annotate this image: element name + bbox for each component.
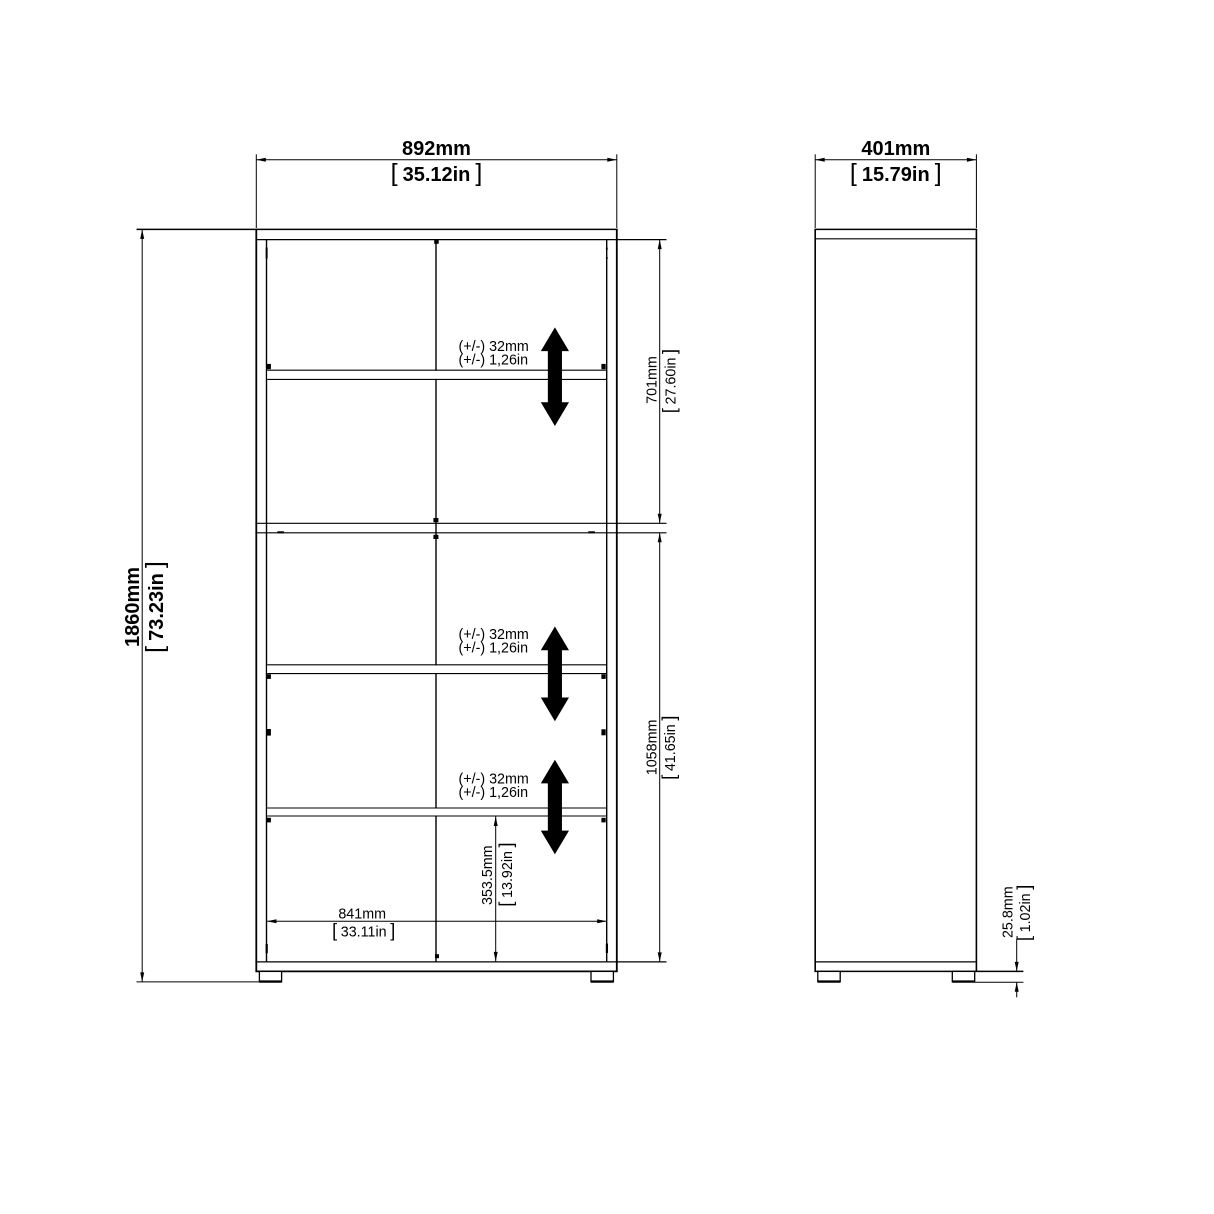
svg-text:(+/-) 1,26in: (+/-) 1,26in: [459, 641, 529, 657]
svg-text:(+/-) 1,26in: (+/-) 1,26in: [459, 785, 529, 801]
svg-text:892mm: 892mm: [402, 138, 471, 160]
svg-text:(+/-) 1,26in: (+/-) 1,26in: [459, 353, 529, 369]
svg-text:[ 33.11in ]: [ 33.11in ]: [332, 920, 395, 940]
svg-text:[ 35.12in ]: [ 35.12in ]: [391, 159, 483, 187]
svg-text:[ 73.23in ]: [ 73.23in ]: [141, 561, 169, 653]
svg-text:353.5mm: 353.5mm: [480, 845, 496, 905]
svg-text:1058mm: 1058mm: [644, 720, 660, 776]
svg-text:[ 27.60in ]: [ 27.60in ]: [660, 349, 680, 413]
svg-text:701mm: 701mm: [645, 356, 661, 404]
svg-text:401mm: 401mm: [861, 138, 930, 160]
svg-text:[ 1.02in ]: [ 1.02in ]: [1014, 885, 1034, 941]
svg-text:[ 41.65in ]: [ 41.65in ]: [659, 716, 679, 780]
svg-text:1860mm: 1860mm: [122, 567, 144, 647]
svg-text:[ 13.92in ]: [ 13.92in ]: [496, 842, 516, 906]
svg-text:841mm: 841mm: [338, 907, 386, 923]
svg-text:[ 15.79in ]: [ 15.79in ]: [850, 159, 942, 187]
